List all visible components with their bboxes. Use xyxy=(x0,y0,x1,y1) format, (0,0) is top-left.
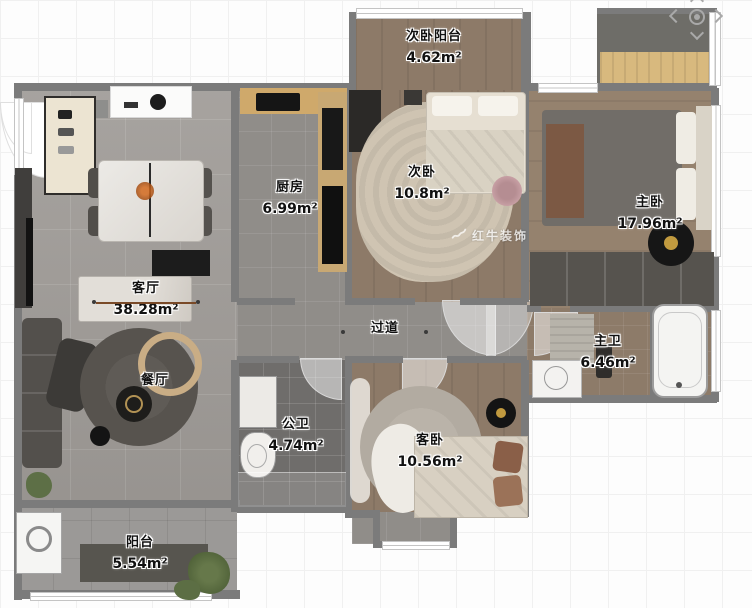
window-master-right xyxy=(711,105,721,257)
dimension-line-living xyxy=(96,302,196,304)
room-name: 阳台 xyxy=(112,536,167,549)
wall xyxy=(237,356,299,363)
plant[interactable] xyxy=(26,472,52,498)
floor-lamp[interactable] xyxy=(90,426,110,446)
room-label-guest-bedroom: 客卧 10.56m² xyxy=(397,434,462,469)
design-canvas[interactable]: { "watermark": { "brand": "红牛装饰" }, "pan… xyxy=(0,0,752,608)
room-label-master-bedroom: 主卧 17.96m² xyxy=(617,196,682,231)
room-label-public-bath: 公卫 4.74m² xyxy=(268,418,323,453)
room-area: 10.8m² xyxy=(394,187,449,201)
pillow xyxy=(676,112,696,164)
dimension-dot xyxy=(196,300,200,304)
chevron-up-icon[interactable] xyxy=(690,0,704,8)
toilet-seat xyxy=(247,444,267,468)
wall xyxy=(237,298,295,305)
nightstand[interactable] xyxy=(404,90,422,105)
wall xyxy=(14,500,240,508)
sideboard-item xyxy=(124,102,138,108)
watermark-brand: 红牛装饰 xyxy=(472,227,528,244)
room-name: 客厅 xyxy=(113,282,178,295)
bed-throw xyxy=(546,124,584,218)
room-area: 17.96m² xyxy=(617,217,682,231)
wall xyxy=(521,12,531,90)
wall xyxy=(345,356,403,363)
recenter-target-icon[interactable] xyxy=(689,9,705,25)
cabinet-item xyxy=(58,128,74,136)
wall xyxy=(460,298,527,305)
tv[interactable] xyxy=(26,218,33,306)
pillow xyxy=(492,440,524,474)
speaker[interactable] xyxy=(152,250,210,276)
coffee-table-ring xyxy=(125,395,143,413)
sink-basin xyxy=(544,366,568,390)
room-name: 次卧 xyxy=(394,166,449,179)
room-area: 6.99m² xyxy=(262,202,317,216)
dimension-dot xyxy=(341,330,345,334)
room-label-balcony: 阳台 5.54m² xyxy=(112,536,167,571)
chevron-down-icon[interactable] xyxy=(690,26,704,40)
round-chair-cushion xyxy=(664,236,678,250)
room-area: 38.28m² xyxy=(113,303,178,317)
pillow xyxy=(493,475,524,508)
room-name: 餐厅 xyxy=(141,374,169,387)
room-area: 4.74m² xyxy=(268,439,323,453)
chevron-right-icon[interactable] xyxy=(709,9,723,23)
plant[interactable] xyxy=(174,580,200,600)
wall xyxy=(527,305,541,312)
watermark: 红牛装饰 xyxy=(450,226,528,244)
stool-cushion xyxy=(496,408,506,418)
wall xyxy=(447,356,527,363)
pink-chair[interactable] xyxy=(492,176,522,206)
entry-door-opening xyxy=(14,98,24,175)
room-name: 公卫 xyxy=(268,418,323,431)
room-label-dining: 餐厅 xyxy=(141,374,169,387)
chevron-left-icon[interactable] xyxy=(669,9,683,23)
table-flowers xyxy=(136,182,154,200)
room-name: 主卫 xyxy=(580,335,635,348)
room-name: 厨房 xyxy=(262,181,317,194)
cabinet-item xyxy=(58,110,72,119)
pillow xyxy=(478,96,518,116)
window-bay xyxy=(382,541,450,550)
dining-table[interactable] xyxy=(98,160,204,242)
brand-logo-icon xyxy=(450,226,468,244)
floorplan[interactable]: 红牛装饰 次卧阳台 4.62m² 次卧 10.8m² 主卧 17.96m² 厨房… xyxy=(0,0,752,608)
room-name: 客卧 xyxy=(397,434,462,447)
shower-zone xyxy=(238,472,346,507)
wardrobe-master[interactable] xyxy=(530,252,714,306)
room-name: 主卧 xyxy=(617,196,682,209)
bathtub-drain xyxy=(676,382,682,388)
room-label-living: 客厅 38.28m² xyxy=(113,282,178,317)
kitchen-appliance[interactable] xyxy=(322,108,343,170)
room-area: 10.56m² xyxy=(397,455,462,469)
window-tub xyxy=(711,310,721,392)
bathtub-basin xyxy=(658,312,702,388)
room-label-second-balcony: 次卧阳台 4.62m² xyxy=(406,30,462,65)
room-label-master-bath: 主卫 6.46m² xyxy=(580,335,635,370)
kitchen-appliance[interactable] xyxy=(322,186,343,264)
dining-table-runner xyxy=(149,163,151,237)
pillow xyxy=(432,96,472,116)
room-area: 6.46m² xyxy=(580,356,635,370)
washer-door xyxy=(26,526,52,552)
room-area: 5.54m² xyxy=(112,557,167,571)
cabinet-item xyxy=(58,146,74,154)
window-master-top xyxy=(538,83,598,93)
wall xyxy=(231,88,239,302)
room-label-kitchen: 厨房 6.99m² xyxy=(262,181,317,216)
wall xyxy=(349,12,356,90)
cooktop[interactable] xyxy=(256,93,300,111)
dimension-dot xyxy=(424,330,428,334)
room-label-second-bedroom: 次卧 10.8m² xyxy=(394,166,449,201)
window-balcony-top xyxy=(356,8,523,19)
room-label-corridor: 过道 xyxy=(371,322,399,335)
room-name: 次卧阳台 xyxy=(406,30,462,43)
sideboard-bowl xyxy=(150,94,166,110)
headboard xyxy=(696,106,712,230)
dimension-dot xyxy=(92,300,96,304)
room-area: 4.62m² xyxy=(406,51,462,65)
room-name: 过道 xyxy=(371,322,399,335)
wall xyxy=(345,298,415,305)
pan-control[interactable] xyxy=(664,0,734,42)
